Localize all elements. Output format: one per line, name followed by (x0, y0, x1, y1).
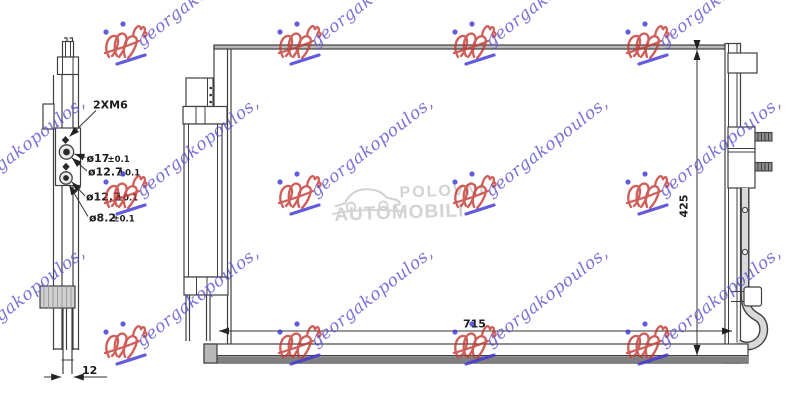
drier-lower-bracket (184, 277, 228, 295)
condenser-technical-drawing-page: 12 2XM6 ø17 ±0.1 ø12.7 ±0.1 ø12.7 ±0.1 ø… (0, 0, 800, 410)
automobili-text: AUTOMOBILI (334, 200, 465, 227)
svg-text:±0.1: ±0.1 (116, 194, 138, 204)
pipe-connector-block (728, 127, 755, 188)
upper-left-bracket (186, 78, 213, 107)
svg-text:±0.1: ±0.1 (108, 155, 130, 165)
svg-text:±0.1: ±0.1 (113, 215, 135, 225)
dim-12: 12 (44, 364, 107, 377)
lower-right-bracket (744, 287, 762, 306)
dim-425: 425 (678, 50, 698, 355)
dim-715: 715 (219, 318, 732, 332)
label-d17: ø17 (87, 152, 110, 165)
dim-715-label: 715 (463, 318, 486, 331)
polovni-automobili-watermark: POLOVNI AUTOMOBILI (329, 173, 501, 233)
svg-text:±0.1: ±0.1 (118, 169, 140, 179)
side-view: 12 2XM6 ø17 ±0.1 ø12.7 ±0.1 ø12.7 ±0.1 ø… (40, 38, 140, 377)
condenser-core-left-edge (228, 49, 232, 344)
side-left-tab (43, 104, 54, 129)
bottom-side-plate (204, 344, 748, 363)
top-side-plate (214, 45, 725, 49)
top-right-bracket (728, 53, 757, 73)
label-2xm6: 2XM6 (93, 99, 128, 112)
polovni-text: POLOVNI (399, 182, 486, 203)
side-top-block (58, 57, 79, 75)
dim-425-label: 425 (678, 195, 691, 218)
dim-12-label: 12 (82, 364, 97, 377)
receiver-drier (184, 124, 222, 277)
right-tank (725, 44, 741, 364)
